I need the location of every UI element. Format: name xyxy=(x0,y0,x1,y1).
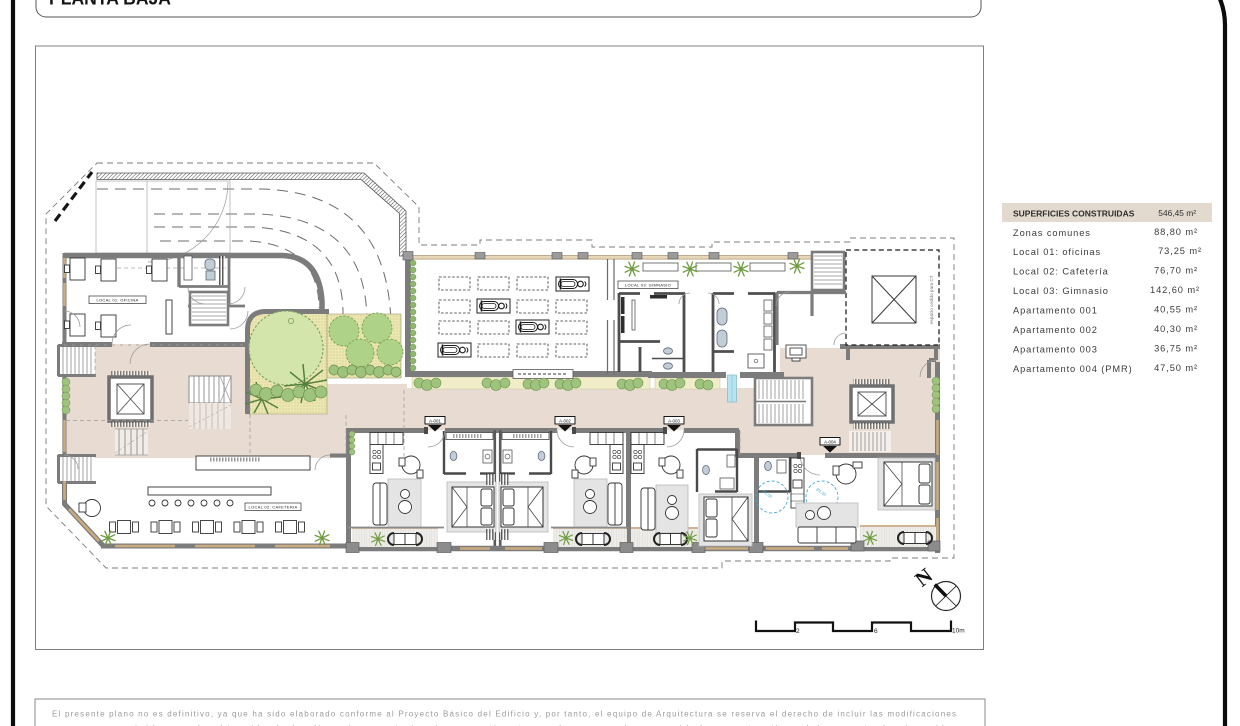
svg-text:LOCAL 02: CAFETERIA: LOCAL 02: CAFETERIA xyxy=(249,505,298,510)
svg-text:A-002: A-002 xyxy=(559,418,571,423)
svg-text:A-003: A-003 xyxy=(668,418,680,423)
svg-text:Apartamento 004 (PMR): Apartamento 004 (PMR) xyxy=(1013,364,1133,374)
svg-text:A-004: A-004 xyxy=(824,439,836,444)
svg-text:73,25 m²: 73,25 m² xyxy=(1158,246,1202,256)
svg-text:40,55 m²: 40,55 m² xyxy=(1154,305,1198,315)
svg-text:546,45 m²: 546,45 m² xyxy=(1158,208,1196,218)
svg-text:A-001: A-001 xyxy=(429,418,441,423)
svg-text:142,60 m²: 142,60 m² xyxy=(1150,285,1200,295)
svg-text:LOCAL 01: OFICINA: LOCAL 01: OFICINA xyxy=(96,298,138,303)
svg-text:Local 03: Gimnasio: Local 03: Gimnasio xyxy=(1013,286,1109,296)
svg-text:Apartamento 002: Apartamento 002 xyxy=(1013,325,1098,335)
svg-text:Zonas comunes: Zonas comunes xyxy=(1013,228,1091,238)
svg-text:2: 2 xyxy=(796,628,800,635)
svg-text:espacio cedido para CT: espacio cedido para CT xyxy=(929,275,934,324)
svg-text:SUPERFICIES CONSTRUIDAS: SUPERFICIES CONSTRUIDAS xyxy=(1013,209,1135,219)
svg-text:El presente plano no es defini: El presente plano no es definitivo, ya q… xyxy=(52,710,956,719)
svg-text:76,70 m²: 76,70 m² xyxy=(1154,266,1198,276)
svg-text:LOCAL 03: GIMNASIO: LOCAL 03: GIMNASIO xyxy=(625,283,671,288)
svg-text:6: 6 xyxy=(874,628,878,635)
svg-text:10m: 10m xyxy=(952,628,965,635)
svg-text:Local 01: oficinas: Local 01: oficinas xyxy=(1013,247,1101,257)
svg-text:Apartamento 003: Apartamento 003 xyxy=(1013,345,1098,355)
svg-text:88,80 m²: 88,80 m² xyxy=(1154,227,1198,237)
svg-text:Apartamento 001: Apartamento 001 xyxy=(1013,306,1098,316)
svg-text:40,30 m²: 40,30 m² xyxy=(1154,324,1198,334)
svg-text:Local 02: Cafetería: Local 02: Cafetería xyxy=(1013,267,1109,277)
svg-text:PLANTA BAJA: PLANTA BAJA xyxy=(49,0,171,10)
svg-text:47,50 m²: 47,50 m² xyxy=(1154,363,1198,373)
svg-text:36,75 m²: 36,75 m² xyxy=(1154,344,1198,354)
